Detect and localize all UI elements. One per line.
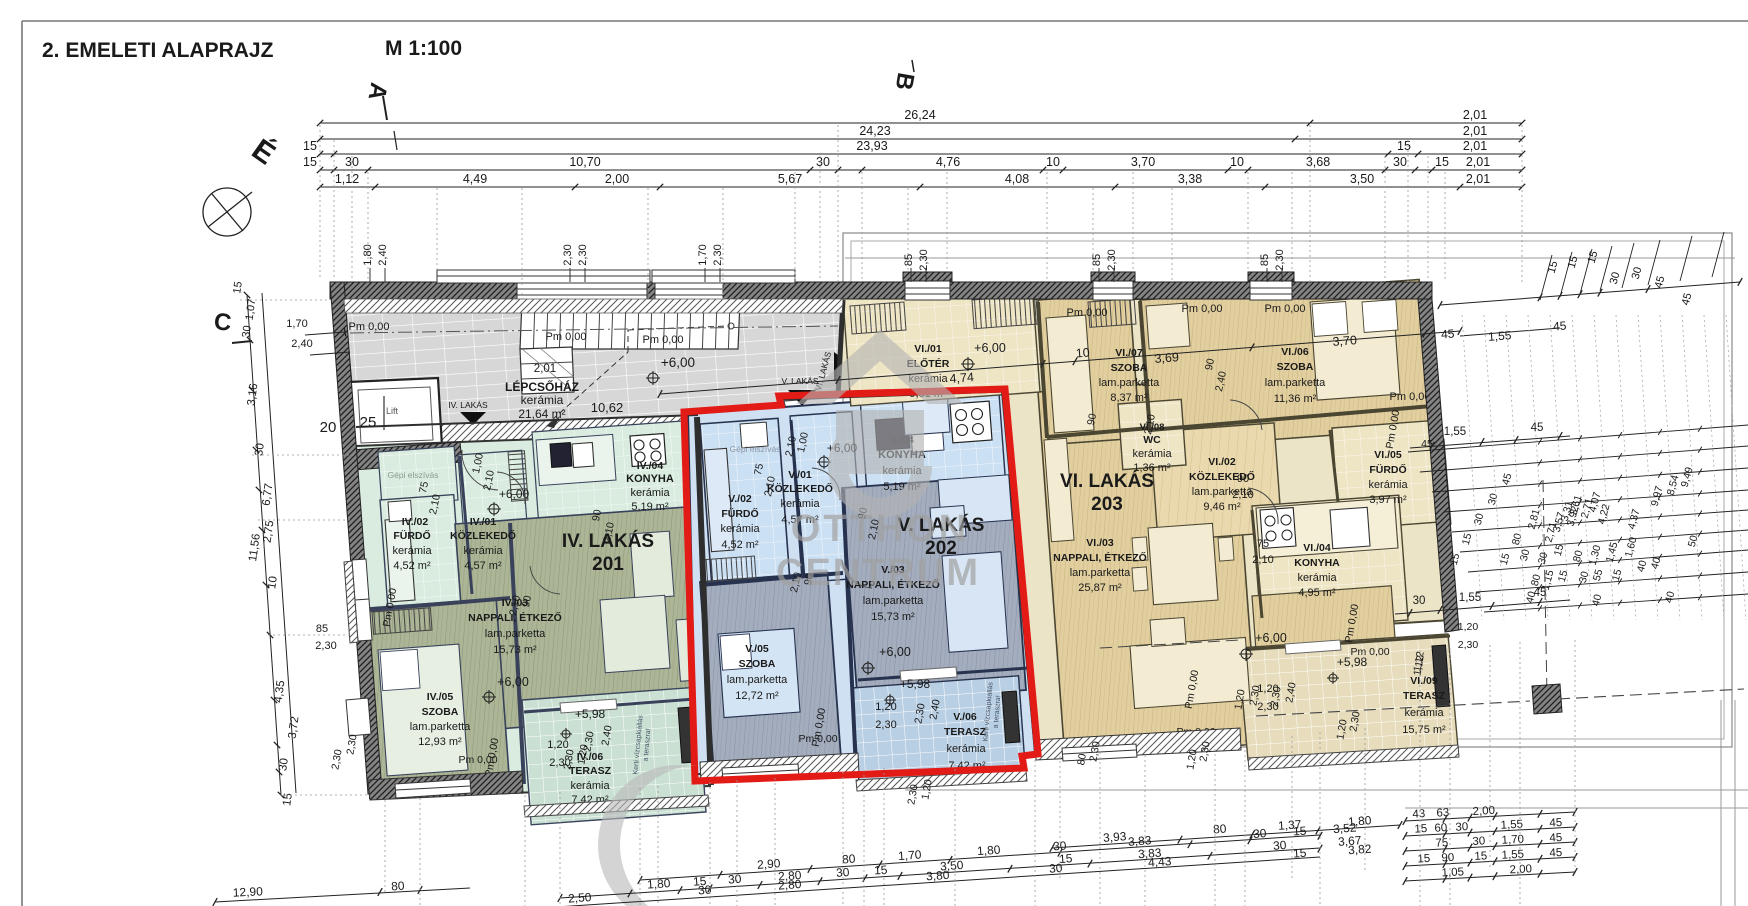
svg-text:V./01: V./01 xyxy=(788,469,812,481)
svg-text:10: 10 xyxy=(1230,155,1244,169)
svg-text:lam.parketta: lam.parketta xyxy=(727,674,788,686)
svg-text:2,01: 2,01 xyxy=(1463,139,1487,153)
svg-text:10,62: 10,62 xyxy=(591,400,624,415)
svg-text:OTTHON: OTTHON xyxy=(791,508,969,550)
svg-text:45: 45 xyxy=(1553,319,1568,334)
svg-text:FÜRDŐ: FÜRDŐ xyxy=(1369,463,1406,476)
svg-text:30: 30 xyxy=(240,325,254,339)
svg-text:2,00: 2,00 xyxy=(605,172,629,186)
svg-text:kerámia: kerámia xyxy=(720,523,760,535)
svg-text:2,30: 2,30 xyxy=(918,249,930,270)
svg-text:1,70: 1,70 xyxy=(286,318,307,330)
svg-text:kerámia: kerámia xyxy=(1132,448,1172,460)
svg-text:+6,00: +6,00 xyxy=(661,355,695,370)
svg-text:Pm 0,00: Pm 0,00 xyxy=(1182,303,1223,315)
svg-text:TERASZ: TERASZ xyxy=(1403,690,1446,702)
svg-text:3,93: 3,93 xyxy=(1103,829,1128,845)
svg-text:FÜRDŐ: FÜRDŐ xyxy=(721,507,758,520)
svg-text:201: 201 xyxy=(592,554,624,575)
svg-text:30: 30 xyxy=(698,883,713,898)
svg-text:2,01: 2,01 xyxy=(1466,172,1490,186)
svg-text:45: 45 xyxy=(1421,438,1433,450)
svg-text:V./02: V./02 xyxy=(728,493,752,505)
svg-text:VI./09: VI./09 xyxy=(1410,675,1438,687)
svg-text:IV./05: IV./05 xyxy=(427,691,454,703)
svg-text:45: 45 xyxy=(1549,832,1562,845)
svg-text:12,72 m²: 12,72 m² xyxy=(735,690,779,702)
svg-text:63: 63 xyxy=(1436,807,1449,820)
svg-text:lam.parketta: lam.parketta xyxy=(1099,377,1160,389)
svg-text:4,74: 4,74 xyxy=(949,370,974,386)
svg-text:15: 15 xyxy=(1414,823,1427,836)
svg-text:11,36 m²: 11,36 m² xyxy=(1274,393,1317,405)
svg-text:V./06: V./06 xyxy=(953,711,977,723)
svg-text:15: 15 xyxy=(1474,850,1487,863)
svg-text:Gépi elszívás: Gépi elszívás xyxy=(729,444,780,454)
svg-text:5,19 m²: 5,19 m² xyxy=(631,501,669,513)
svg-text:15: 15 xyxy=(1417,853,1430,866)
svg-text:kerámia: kerámia xyxy=(521,393,564,407)
svg-text:4,43: 4,43 xyxy=(1148,854,1173,870)
svg-text:SZOBA: SZOBA xyxy=(422,706,459,718)
svg-text:kerámia: kerámia xyxy=(946,743,986,755)
svg-text:25: 25 xyxy=(360,414,377,431)
svg-text:30: 30 xyxy=(1273,838,1288,853)
svg-text:80: 80 xyxy=(391,879,405,894)
svg-text:30: 30 xyxy=(816,155,830,169)
svg-text:10: 10 xyxy=(1046,155,1060,169)
svg-text:Lift: Lift xyxy=(386,406,399,416)
svg-text:VI./01: VI./01 xyxy=(914,343,942,355)
svg-text:2,10: 2,10 xyxy=(1232,489,1253,501)
svg-text:75: 75 xyxy=(1435,837,1448,850)
svg-text:8,37 m²: 8,37 m² xyxy=(1110,392,1148,404)
svg-text:2,30: 2,30 xyxy=(1106,249,1118,270)
svg-text:2,30: 2,30 xyxy=(712,244,724,265)
svg-text:lam.parketta: lam.parketta xyxy=(485,628,546,640)
svg-text:3,80: 3,80 xyxy=(926,868,951,884)
svg-text:4,76: 4,76 xyxy=(936,155,960,169)
svg-text:30: 30 xyxy=(1413,595,1426,607)
svg-text:kerámia: kerámia xyxy=(1368,479,1408,491)
svg-text:1,55: 1,55 xyxy=(1500,819,1523,832)
svg-text:1,12: 1,12 xyxy=(335,172,359,186)
svg-text:23,93: 23,93 xyxy=(856,139,887,153)
svg-text:15: 15 xyxy=(1293,824,1308,839)
svg-text:Pm 0,00: Pm 0,00 xyxy=(1265,303,1306,315)
svg-text:2,00: 2,00 xyxy=(1472,805,1495,818)
svg-text:LÉPCSŐHÁZ: LÉPCSŐHÁZ xyxy=(505,379,579,394)
svg-text:KÖZLEKEDŐ: KÖZLEKEDŐ xyxy=(767,482,833,495)
svg-text:10,70: 10,70 xyxy=(569,155,600,169)
svg-text:VI./04: VI./04 xyxy=(1303,542,1331,554)
svg-text:2,01: 2,01 xyxy=(1463,108,1487,122)
svg-text:20: 20 xyxy=(320,419,337,436)
svg-text:5,67: 5,67 xyxy=(778,172,802,186)
svg-text:kerámia: kerámia xyxy=(463,545,503,557)
svg-text:15,75 m²: 15,75 m² xyxy=(1402,724,1446,736)
svg-text:30: 30 xyxy=(728,872,743,887)
svg-text:2,30: 2,30 xyxy=(1458,639,1479,651)
svg-text:30: 30 xyxy=(277,757,291,771)
svg-text:3,70: 3,70 xyxy=(1131,155,1155,169)
svg-text:2,80: 2,80 xyxy=(778,877,803,893)
svg-text:1,55: 1,55 xyxy=(1501,849,1524,862)
svg-text:FÜRDŐ: FÜRDŐ xyxy=(393,529,430,542)
svg-text:4,57 m²: 4,57 m² xyxy=(464,560,502,572)
svg-text:1,55: 1,55 xyxy=(1459,592,1481,604)
svg-text:15: 15 xyxy=(1435,155,1449,169)
svg-text:1,80: 1,80 xyxy=(977,843,1002,859)
svg-text:43: 43 xyxy=(1412,808,1425,821)
svg-text:4,08: 4,08 xyxy=(1005,172,1029,186)
svg-text:26,24: 26,24 xyxy=(904,108,935,122)
svg-text:VI. LAKÁS: VI. LAKÁS xyxy=(1060,470,1154,492)
svg-text:IV./02: IV./02 xyxy=(402,516,429,528)
svg-text:4,49: 4,49 xyxy=(463,172,487,186)
svg-text:Pm 0,00: Pm 0,00 xyxy=(643,334,684,346)
svg-text:SZOBA: SZOBA xyxy=(1277,361,1314,373)
svg-text:lam.parketta: lam.parketta xyxy=(1265,377,1326,389)
svg-text:+6,00: +6,00 xyxy=(1255,631,1287,645)
svg-text:30: 30 xyxy=(1455,821,1468,834)
svg-text:Pm 0,00: Pm 0,00 xyxy=(546,331,587,343)
svg-text:15: 15 xyxy=(1397,139,1411,153)
svg-text:85: 85 xyxy=(316,623,328,635)
svg-text:Pm 0,00: Pm 0,00 xyxy=(1390,391,1431,403)
svg-text:VI./03: VI./03 xyxy=(1086,537,1114,549)
svg-text:Pm 0,00: Pm 0,00 xyxy=(1067,307,1108,319)
svg-text:VI./02: VI./02 xyxy=(1208,456,1236,468)
svg-text:45: 45 xyxy=(1534,587,1547,599)
svg-text:2,50: 2,50 xyxy=(568,890,593,906)
svg-text:12,90: 12,90 xyxy=(232,884,263,900)
svg-text:2,30: 2,30 xyxy=(577,244,589,265)
svg-text:45: 45 xyxy=(1441,327,1456,342)
svg-text:25,87 m²: 25,87 m² xyxy=(1078,582,1122,594)
svg-text:Gépi elszívás: Gépi elszívás xyxy=(387,470,438,480)
svg-text:SZOBA: SZOBA xyxy=(739,658,776,670)
svg-text:10: 10 xyxy=(266,575,280,589)
svg-text:+6,00: +6,00 xyxy=(879,645,911,659)
svg-text:3,97 m²: 3,97 m² xyxy=(1369,494,1407,506)
svg-text:lam.parketta: lam.parketta xyxy=(1070,567,1131,579)
svg-text:1,80: 1,80 xyxy=(362,244,374,265)
svg-text:Pm 0,00: Pm 0,00 xyxy=(1350,646,1389,658)
svg-text:KÖZLEKEDŐ: KÖZLEKEDŐ xyxy=(450,529,516,542)
svg-text:15: 15 xyxy=(303,155,317,169)
svg-text:M 1:100: M 1:100 xyxy=(385,37,462,60)
svg-text:IV./04: IV./04 xyxy=(637,460,664,472)
svg-text:30: 30 xyxy=(1472,835,1485,848)
svg-text:2,30: 2,30 xyxy=(315,640,336,652)
svg-text:75: 75 xyxy=(1257,538,1269,550)
svg-text:C: C xyxy=(213,308,233,336)
svg-text:3,82: 3,82 xyxy=(1348,842,1373,858)
svg-text:80: 80 xyxy=(842,852,857,867)
svg-text:3,38: 3,38 xyxy=(1178,172,1202,186)
svg-text:90: 90 xyxy=(1237,473,1249,485)
svg-text:90: 90 xyxy=(1441,852,1454,865)
svg-text:10: 10 xyxy=(1075,346,1090,361)
svg-text:TERASZ: TERASZ xyxy=(569,765,612,777)
svg-text:45: 45 xyxy=(1549,847,1562,860)
svg-text:4,52 m²: 4,52 m² xyxy=(393,560,431,572)
svg-text:203: 203 xyxy=(1091,494,1123,515)
svg-text:+6,00: +6,00 xyxy=(974,341,1006,355)
svg-text:1,80: 1,80 xyxy=(647,876,672,892)
svg-text:30: 30 xyxy=(253,442,267,456)
svg-text:85: 85 xyxy=(1259,254,1271,266)
svg-text:2,40: 2,40 xyxy=(291,338,312,350)
svg-text:kerámia: kerámia xyxy=(1404,707,1444,719)
svg-text:2,00: 2,00 xyxy=(1509,863,1532,876)
svg-text:V. LAKÁS: V. LAKÁS xyxy=(781,376,818,386)
svg-text:2,30: 2,30 xyxy=(562,244,574,265)
svg-text:2,01: 2,01 xyxy=(1466,155,1490,169)
svg-text:KONYHA: KONYHA xyxy=(626,473,674,485)
svg-text:15: 15 xyxy=(231,281,245,295)
svg-text:2. EMELETI ALAPRAJZ: 2. EMELETI ALAPRAJZ xyxy=(42,39,274,62)
svg-text:9,46 m²: 9,46 m² xyxy=(1203,501,1241,513)
svg-text:30: 30 xyxy=(1049,861,1064,876)
svg-text:15: 15 xyxy=(303,139,317,153)
svg-text:3,69: 3,69 xyxy=(1154,350,1179,366)
svg-text:15,73 m²: 15,73 m² xyxy=(871,611,915,623)
svg-text:CENTRUM: CENTRUM xyxy=(776,552,980,594)
svg-text:85: 85 xyxy=(1091,254,1103,266)
svg-text:15: 15 xyxy=(874,863,889,878)
svg-text:SZOBA: SZOBA xyxy=(1111,362,1148,374)
svg-text:+5,98: +5,98 xyxy=(900,677,931,691)
svg-text:45: 45 xyxy=(1531,422,1544,434)
svg-text:4,52 m²: 4,52 m² xyxy=(721,539,759,551)
svg-text:30: 30 xyxy=(1253,826,1268,841)
svg-text:kerámia: kerámia xyxy=(392,545,432,557)
svg-text:1,55: 1,55 xyxy=(1488,328,1513,344)
svg-text:kerámia: kerámia xyxy=(1297,572,1337,584)
svg-text:1,70: 1,70 xyxy=(898,847,923,863)
svg-text:IV. LAKÁS: IV. LAKÁS xyxy=(448,400,488,410)
svg-text:1,05: 1,05 xyxy=(1441,866,1464,879)
svg-text:KONYHA: KONYHA xyxy=(1294,557,1340,569)
svg-text:2,30: 2,30 xyxy=(1274,249,1286,270)
svg-text:15: 15 xyxy=(281,792,295,806)
svg-text:V./05: V./05 xyxy=(745,643,769,655)
svg-text:NAPPALI, ÉTKEZŐ: NAPPALI, ÉTKEZŐ xyxy=(1053,551,1147,564)
svg-text:24,23: 24,23 xyxy=(859,124,890,138)
svg-text:VI./06: VI./06 xyxy=(1281,346,1309,358)
svg-text:30: 30 xyxy=(1393,155,1407,169)
svg-text:Pm 0,00: Pm 0,00 xyxy=(349,321,390,333)
svg-text:lam.parketta: lam.parketta xyxy=(863,595,924,607)
svg-text:15,73 m²: 15,73 m² xyxy=(493,644,537,656)
svg-text:2,40: 2,40 xyxy=(377,244,389,265)
svg-text:2,01: 2,01 xyxy=(534,363,556,375)
svg-text:Pm 0,00: Pm 0,00 xyxy=(458,754,497,766)
svg-text:1,20: 1,20 xyxy=(875,701,896,713)
svg-text:2,01: 2,01 xyxy=(1463,124,1487,138)
svg-text:45: 45 xyxy=(1549,817,1562,830)
svg-text:1,55: 1,55 xyxy=(1444,426,1466,438)
svg-text:+5,98: +5,98 xyxy=(575,707,606,721)
svg-text:3,68: 3,68 xyxy=(1306,155,1330,169)
svg-text:lam.parketta: lam.parketta xyxy=(410,721,471,733)
svg-text:1,20: 1,20 xyxy=(1458,621,1479,633)
svg-text:2,30: 2,30 xyxy=(875,719,896,731)
svg-text:4,95 m²: 4,95 m² xyxy=(1298,587,1336,599)
svg-text:2,10: 2,10 xyxy=(1252,554,1273,566)
svg-text:IV./01: IV./01 xyxy=(470,516,497,528)
svg-text:1,70: 1,70 xyxy=(697,244,709,265)
svg-text:TERASZ: TERASZ xyxy=(944,726,987,738)
svg-text:kerámia: kerámia xyxy=(630,487,670,499)
svg-text:12,93 m²: 12,93 m² xyxy=(418,736,462,748)
svg-text:kerámia: kerámia xyxy=(570,780,610,792)
svg-text:Pm 0,00: Pm 0,00 xyxy=(798,733,837,745)
svg-text:VI./05: VI./05 xyxy=(1374,449,1402,461)
svg-text:+6,00: +6,00 xyxy=(497,675,529,689)
svg-text:1,70: 1,70 xyxy=(1501,834,1524,847)
svg-text:15: 15 xyxy=(1293,846,1308,861)
svg-text:3,50: 3,50 xyxy=(1350,172,1374,186)
svg-text:85: 85 xyxy=(903,254,915,266)
